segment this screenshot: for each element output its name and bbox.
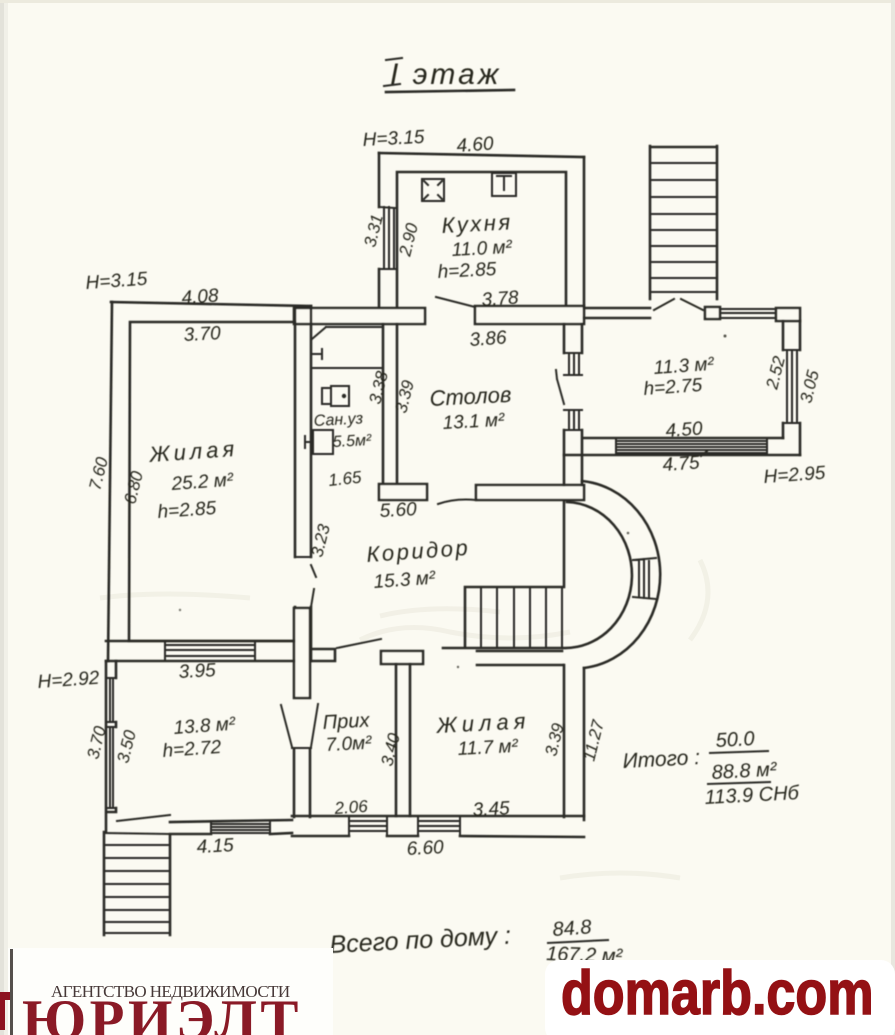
svg-text:H=2.92: H=2.92 — [37, 668, 101, 693]
svg-text:11.0 м²: 11.0 м² — [451, 237, 513, 261]
svg-text:H=2.95: H=2.95 — [763, 463, 827, 488]
svg-text:3.86: 3.86 — [469, 327, 508, 351]
svg-text:50.0: 50.0 — [715, 728, 755, 752]
svg-text:domarb.com: domarb.com — [561, 959, 874, 1028]
svg-text:7.0м²: 7.0м² — [325, 733, 372, 756]
svg-text:88.8 м²: 88.8 м² — [711, 759, 778, 784]
svg-text:3.78: 3.78 — [481, 287, 520, 311]
svg-text:4.15: 4.15 — [196, 835, 234, 858]
svg-text:25.2 м²: 25.2 м² — [170, 470, 235, 495]
svg-text:13.1 м²: 13.1 м² — [442, 410, 505, 434]
svg-text:Жилая: Жилая — [435, 708, 531, 738]
svg-text:3.95: 3.95 — [178, 660, 216, 683]
svg-text:4.60: 4.60 — [456, 133, 495, 157]
svg-text:3.45: 3.45 — [472, 798, 510, 821]
svg-text:H=3.15: H=3.15 — [85, 269, 149, 294]
svg-text:13.8 м²: 13.8 м² — [173, 714, 237, 739]
svg-text:4.75: 4.75 — [662, 452, 701, 476]
svg-text:5.5м²: 5.5м² — [332, 432, 372, 451]
svg-text:5.60: 5.60 — [379, 499, 417, 522]
svg-text:Кухня: Кухня — [441, 209, 513, 238]
svg-text:11.7 м²: 11.7 м² — [457, 736, 519, 760]
svg-text:4.50: 4.50 — [665, 418, 704, 442]
svg-text:1.65: 1.65 — [327, 468, 362, 490]
svg-text:3.70: 3.70 — [183, 323, 221, 346]
svg-text:4.08: 4.08 — [181, 285, 220, 309]
svg-text:2.06: 2.06 — [333, 797, 369, 818]
svg-text:Столов: Столов — [429, 382, 512, 411]
svg-text:h=2.75: h=2.75 — [643, 375, 703, 400]
svg-text:15.3 м²: 15.3 м² — [373, 568, 437, 593]
svg-text:I этаж: I этаж — [390, 58, 501, 91]
svg-text:H=3.15: H=3.15 — [362, 127, 425, 151]
svg-text:6.60: 6.60 — [406, 837, 444, 860]
svg-text:Сан.уз: Сан.уз — [313, 410, 363, 430]
svg-text:84.8: 84.8 — [552, 916, 592, 941]
svg-text:Итого :: Итого : — [622, 746, 701, 773]
svg-text:h=2.72: h=2.72 — [162, 737, 222, 762]
svg-text:Прих: Прих — [322, 710, 371, 734]
svg-text:h=2.85: h=2.85 — [157, 498, 217, 523]
svg-text:h=2.85: h=2.85 — [437, 259, 497, 283]
svg-text:ЮРИЭЛТ: ЮРИЭЛТ — [22, 989, 302, 1035]
